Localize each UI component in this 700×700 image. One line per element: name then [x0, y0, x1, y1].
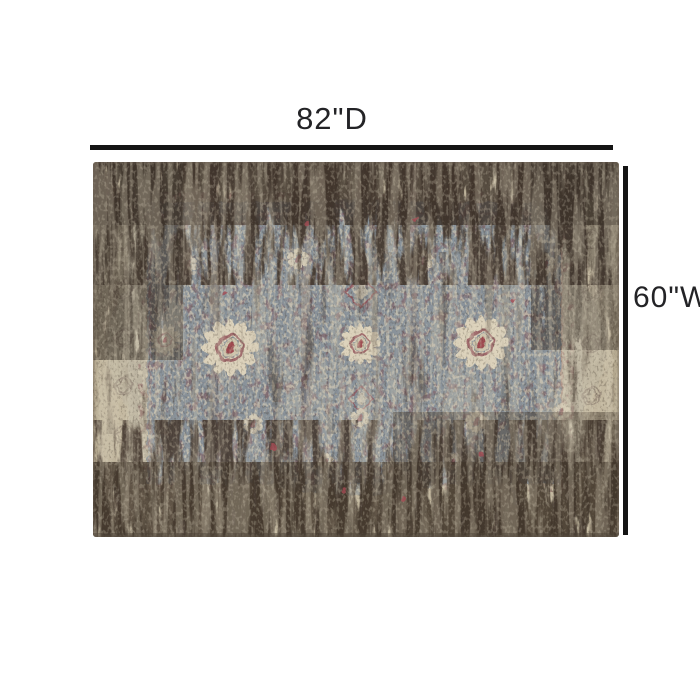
depth-dimension-label: 82"D [264, 103, 400, 134]
rug-illustration [93, 162, 619, 537]
depth-dimension-line [90, 145, 613, 150]
width-dimension-label: 60"W [633, 283, 700, 313]
rug-product-image [93, 162, 619, 537]
product-dimension-diagram: 82"D 60"W [0, 0, 700, 700]
width-dimension-line [623, 166, 628, 535]
